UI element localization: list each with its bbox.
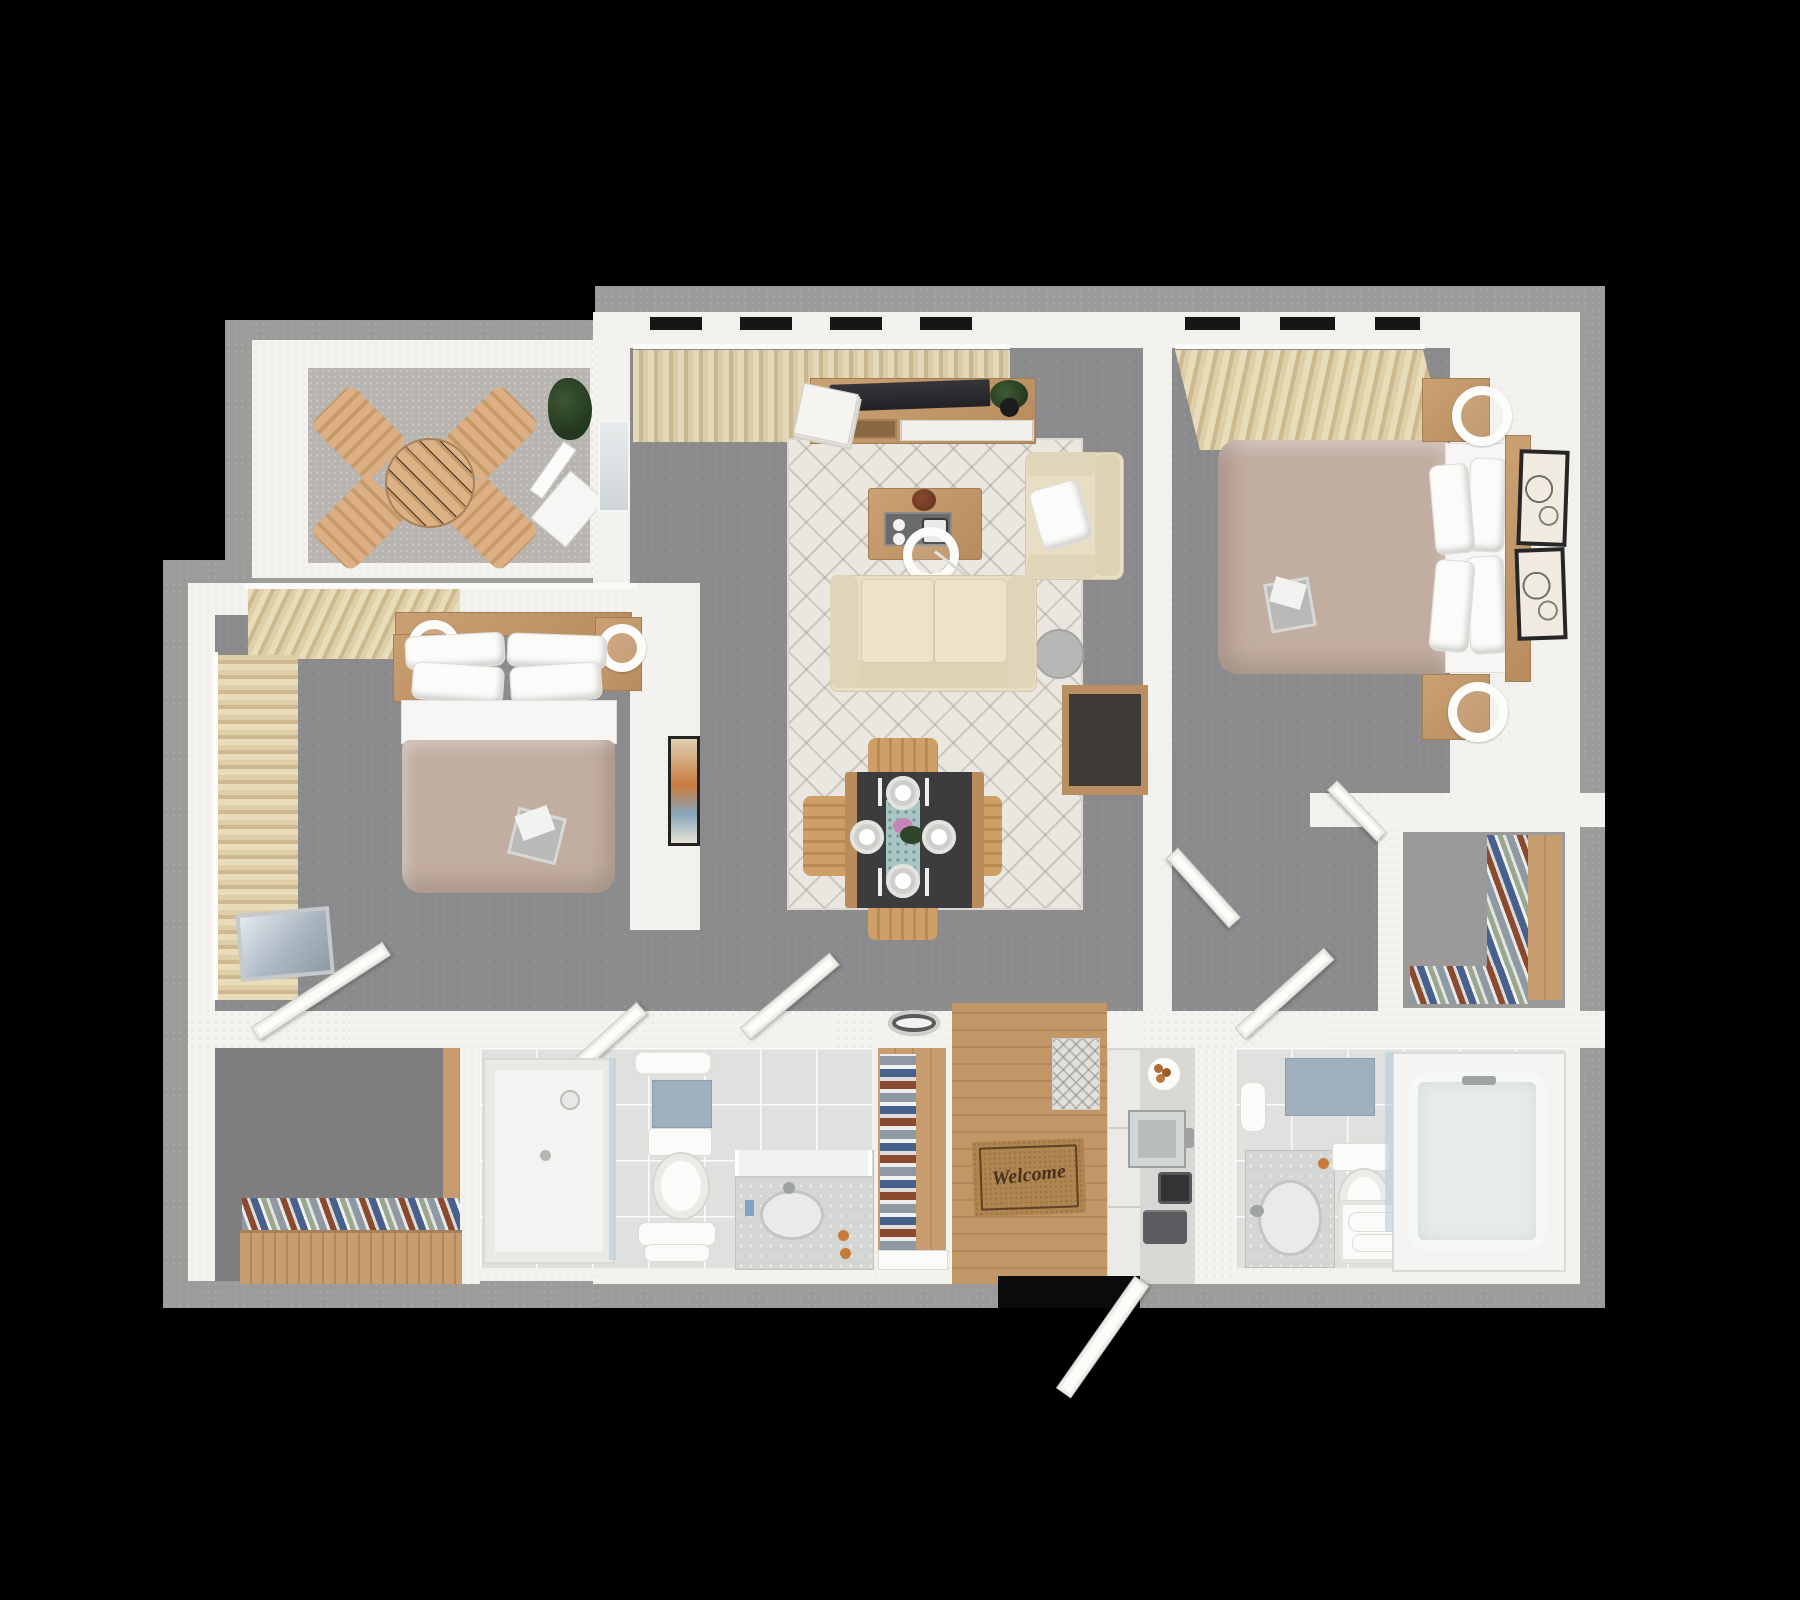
bath1-towel-shelf xyxy=(633,1050,713,1076)
wall-closet2-left xyxy=(1378,827,1403,1008)
shower-head xyxy=(560,1090,580,1110)
bedroom2-lamp-top xyxy=(1452,386,1512,446)
wall-bottom-b xyxy=(345,1011,735,1048)
bedroom1-mirror xyxy=(235,906,335,982)
bedroom2-wall-art-1 xyxy=(1516,449,1569,547)
armchair-arm xyxy=(1027,452,1097,476)
closet2-floor-strip xyxy=(1528,835,1562,1000)
plate-east xyxy=(922,820,956,854)
dining-chair-west xyxy=(803,796,847,876)
plate-south xyxy=(886,864,920,898)
coffee-maker xyxy=(1158,1172,1192,1204)
bath1-towels xyxy=(638,1222,716,1246)
wall-bottom-c xyxy=(835,1011,878,1048)
kitchen-sink xyxy=(1128,1110,1186,1168)
sofa-arm-right xyxy=(1007,575,1035,688)
trash-bin xyxy=(1143,1210,1187,1244)
arc-lamp-base xyxy=(1034,629,1084,679)
shower-drain xyxy=(540,1150,551,1161)
sofa-back xyxy=(832,660,1033,688)
bath1-faucet xyxy=(783,1182,795,1194)
closet1-clothes-row xyxy=(242,1198,460,1232)
table-flowers-leaves xyxy=(900,826,924,844)
balcony-door-panel xyxy=(598,420,630,512)
kitchen-faucet xyxy=(1184,1128,1194,1148)
living-window-slits xyxy=(650,317,1010,330)
bath2-soap xyxy=(1318,1158,1329,1169)
shower-glass xyxy=(609,1058,616,1260)
bedroom2-curtains xyxy=(1175,350,1448,450)
toilet2-tank xyxy=(1332,1143,1390,1171)
wall-art-hall xyxy=(668,736,700,846)
closet1-dresser xyxy=(240,1230,462,1284)
linen-shelf xyxy=(878,1250,948,1270)
armchair-back xyxy=(1095,454,1120,576)
bedroom2-curtain-rail xyxy=(1175,344,1425,349)
sofa-cushion xyxy=(861,579,934,663)
console-plant-pot xyxy=(1000,398,1019,417)
floor-plan-canvas: Welcome xyxy=(0,0,1800,1600)
tv-console-drawers xyxy=(900,420,1034,441)
shower-pan xyxy=(483,1058,615,1264)
wall-living-bedroom2-lower xyxy=(1143,855,1172,1011)
wall-bottom-f xyxy=(1330,1011,1605,1048)
bath1-cup xyxy=(745,1200,754,1216)
sofa-cushion xyxy=(934,579,1007,663)
bath1-towels2 xyxy=(644,1244,710,1262)
ceiling-light xyxy=(888,1010,940,1036)
plate-west xyxy=(850,820,884,854)
bath1-sink xyxy=(760,1190,824,1240)
magazines xyxy=(793,383,859,446)
plate-north xyxy=(886,776,920,810)
wall-closet1-bath1 xyxy=(460,1048,480,1284)
tub-glass-screen xyxy=(1385,1052,1393,1232)
cutlery xyxy=(925,868,929,896)
bar-cabinet xyxy=(1062,685,1148,795)
bath2-faucet xyxy=(1250,1205,1264,1217)
wall-bottom-e xyxy=(1140,1011,1235,1048)
bath1-soap xyxy=(838,1230,849,1241)
bath1-mat xyxy=(652,1080,712,1128)
tray-cup xyxy=(893,519,905,531)
bath2-sink xyxy=(1258,1180,1322,1256)
bed2-pillow xyxy=(1428,462,1476,555)
bed2-pillow xyxy=(1428,558,1476,653)
linen-stack xyxy=(880,1054,916,1250)
bedroom2-wall-art-2 xyxy=(1514,547,1567,641)
cutlery xyxy=(925,778,929,806)
coffee-table-bowl xyxy=(912,489,936,511)
toilet1-bowl xyxy=(652,1152,710,1220)
tub-faucet xyxy=(1462,1076,1496,1085)
balcony-table xyxy=(385,438,475,528)
welcome-mat: Welcome xyxy=(972,1138,1087,1217)
bed1-duvet xyxy=(402,740,615,893)
bed2-duvet xyxy=(1218,440,1450,674)
bathtub xyxy=(1408,1072,1546,1250)
wall-kitchen-bath2 xyxy=(1195,1048,1235,1284)
armchair-arm xyxy=(1027,554,1097,578)
cutlery xyxy=(878,778,882,806)
bedroom2-lamp-bottom xyxy=(1448,682,1508,742)
entry-runner-rug xyxy=(1052,1038,1100,1110)
bedroom2-window-slits xyxy=(1185,317,1420,330)
cutlery xyxy=(878,868,882,896)
bed1-pillow xyxy=(411,661,505,705)
bath2-mat xyxy=(1285,1058,1375,1116)
pastry xyxy=(1154,1064,1163,1073)
sofa-arm-left xyxy=(830,575,858,688)
bed1-sheet xyxy=(401,700,617,744)
balcony-plant xyxy=(548,378,592,440)
tray-cup xyxy=(893,533,905,545)
closet2-clothes-bottom xyxy=(1410,966,1528,1004)
pastry-plate xyxy=(1146,1056,1182,1092)
bed1-pillow xyxy=(509,661,603,705)
bath2-towel-roll xyxy=(1240,1082,1266,1132)
living-curtain-rail xyxy=(633,344,1010,349)
bath1-soap xyxy=(840,1248,851,1259)
wall-bottom-d xyxy=(946,1011,952,1048)
bath1-vanity-backsplash xyxy=(735,1150,872,1178)
